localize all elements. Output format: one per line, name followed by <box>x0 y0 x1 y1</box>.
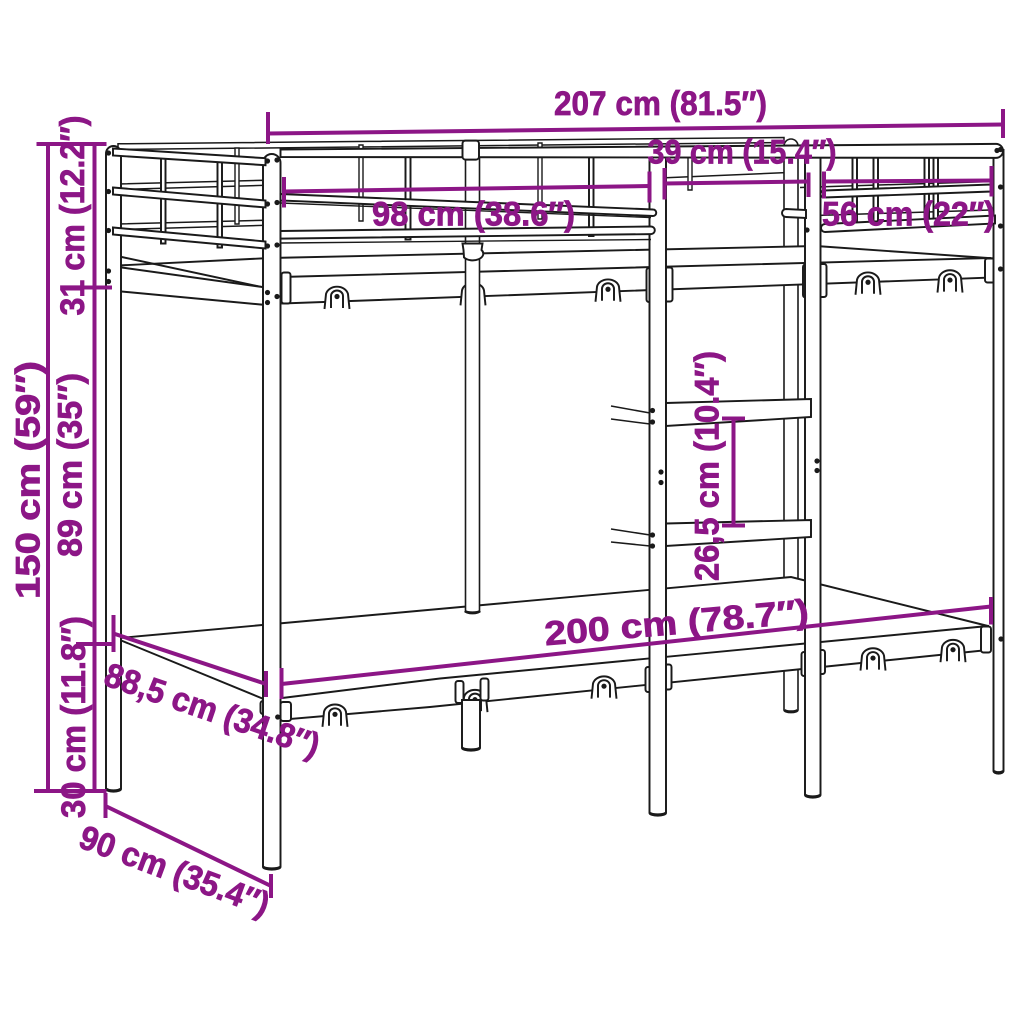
svg-text:31 cm (12.2″): 31 cm (12.2″) <box>54 116 92 316</box>
svg-text:39 cm (15.4″): 39 cm (15.4″) <box>648 134 837 172</box>
svg-text:98 cm (38.6″): 98 cm (38.6″) <box>372 196 575 234</box>
svg-text:150 cm (59″): 150 cm (59″) <box>10 361 48 599</box>
svg-text:89 cm (35″): 89 cm (35″) <box>52 373 90 557</box>
svg-text:30 cm (11.8″): 30 cm (11.8″) <box>55 616 93 818</box>
svg-text:26,5 cm (10.4″): 26,5 cm (10.4″) <box>689 351 727 581</box>
svg-text:56 cm (22″): 56 cm (22″) <box>822 196 995 234</box>
svg-text:207 cm (81.5″): 207 cm (81.5″) <box>554 85 767 123</box>
